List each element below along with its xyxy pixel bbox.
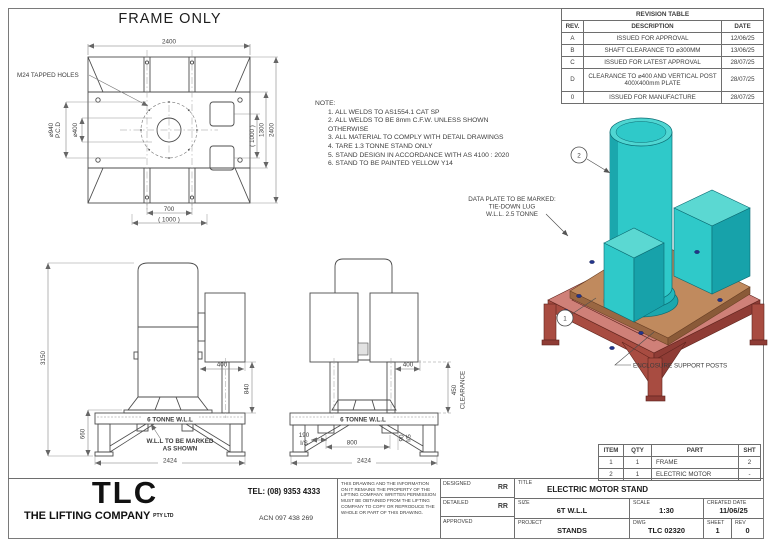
desc-cell: CLEARANCE TO ⌀400 AND VERTICAL POST 400X…	[584, 69, 722, 92]
top-view-drawing: 2400 M24 TAPPED HOLES ⌀940 P.C.D ⌀400 ( …	[8, 10, 308, 235]
side-elevation-objects	[95, 263, 245, 456]
designed-row: DESIGNED RR	[441, 479, 514, 498]
dim-bottom-700: 700	[164, 206, 175, 213]
balloon-2-label: 2	[577, 153, 581, 160]
approved-label: APPROVED	[443, 519, 472, 525]
revision-table: REVISION TABLE REV. DESCRIPTION DATE AIS…	[561, 8, 764, 104]
size-value: 6T W.L.L	[515, 506, 629, 515]
scale-value: 1:30	[630, 506, 703, 515]
dim-2424-side: 2424	[163, 458, 178, 465]
rev-cell: D	[562, 69, 584, 92]
company-name: THE LIFTING COMPANY PTY LTD	[24, 510, 174, 522]
dim-3150: 3150	[40, 351, 47, 366]
side-elevation-drawing: 6 TONNE W.L.L 3150 660 400 840 2424 W.L.…	[20, 232, 280, 475]
company-logo: TLC	[40, 475, 210, 511]
data-plate-note-1: DATA PLATE TO BE MARKED:	[468, 196, 556, 203]
data-plate-note-2: TIE-DOWN LUG	[489, 204, 536, 211]
dim-right-1000: ( 1000 )	[249, 125, 256, 147]
signature-column: DESIGNED RR DETAILED RR APPROVED	[440, 479, 514, 538]
scale-cell: SCALE 1:30	[629, 499, 703, 518]
qty-cell: 1	[624, 457, 652, 469]
dim-pcd: ⌀940	[48, 122, 55, 137]
size-scale-date-row: SIZE 6T W.L.L SCALE 1:30 CREATED DATE 11…	[515, 499, 763, 519]
phone-number: TEL: (08) 9353 4333	[230, 487, 338, 496]
dim-840: 840	[244, 383, 251, 394]
dim-2424-front: 2424	[357, 458, 372, 465]
designed-value: RR	[498, 484, 508, 491]
created-date-value: 11/06/25	[704, 506, 763, 515]
desc-cell: ISSUED FOR APPROVAL	[584, 33, 722, 45]
top-view-frame-outline	[88, 57, 250, 203]
part-col-header: PART	[652, 445, 739, 457]
wll-callout-line2: AS SHOWN	[163, 446, 198, 453]
desc-cell: SHAFT CLEARANCE TO ⌀300MM	[584, 45, 722, 57]
rev-cell: C	[562, 57, 584, 69]
clearance-label: CLEARANCE	[460, 371, 467, 410]
rev-number: 0	[732, 526, 763, 535]
is-label-left: I/S	[300, 440, 308, 447]
sheet-number: 1	[704, 526, 731, 535]
rev-cell: A	[562, 33, 584, 45]
date-cell: 12/06/25	[722, 33, 764, 45]
front-elevation-objects	[290, 259, 438, 456]
dim-bore: ⌀400	[72, 122, 79, 137]
item-table: ITEM QTY PART SHT 1 1 FRAME 2 2 1 ELECTR…	[598, 444, 761, 481]
balloon-1-label: 1	[563, 316, 567, 323]
dim-right-1300: 1300	[259, 123, 266, 138]
is-label-right: I/S	[406, 434, 413, 442]
detailed-label: DETAILED	[443, 500, 469, 506]
sheet-cell: SHEET 1	[703, 519, 731, 538]
side-elevation-text: 6 TONNE W.L.L 3150 660 400 840 2424 W.L.…	[40, 351, 251, 465]
qty-col-header: QTY	[624, 445, 652, 457]
project-cell: PROJECT STANDS	[515, 519, 629, 538]
title-block: TLC THE LIFTING COMPANY PTY LTD TEL: (08…	[8, 478, 763, 539]
dim-90: 90	[399, 434, 406, 442]
side-wll-label: 6 TONNE W.L.L	[147, 417, 193, 424]
front-wll-label: 6 TONNE W.L.L	[340, 417, 386, 424]
rev-col-header: REV.	[562, 21, 584, 33]
part-cell: FRAME	[652, 457, 739, 469]
drawing-info-section: TITLE ELECTRIC MOTOR STAND SIZE 6T W.L.L…	[514, 479, 763, 538]
acn-number: ACN 097 438 269	[236, 515, 336, 522]
date-cell: 28/07/25	[722, 69, 764, 92]
title-cell: TITLE ELECTRIC MOTOR STAND	[515, 479, 763, 498]
title-row: TITLE ELECTRIC MOTOR STAND	[515, 479, 763, 499]
desc-col-header: DESCRIPTION	[584, 21, 722, 33]
date-col-header: DATE	[722, 21, 764, 33]
table-row: 1 1 FRAME 2	[599, 457, 761, 469]
sht-cell: 2	[739, 457, 761, 469]
top-view-dimensions	[66, 44, 278, 225]
approved-row: APPROVED	[441, 517, 514, 537]
rev-cell: REV 0	[731, 519, 763, 538]
dwg-number: TLC 02320	[630, 526, 703, 535]
project-value: STANDS	[515, 526, 629, 535]
revision-table-title: REVISION TABLE	[562, 9, 764, 21]
dim-pcd-sub: P.C.D	[55, 122, 62, 138]
copyright-disclaimer: THIS DRAWING AND THE INFORMATION ON IT R…	[337, 479, 440, 538]
dim-660: 660	[80, 428, 87, 439]
title-label: TITLE	[518, 480, 532, 486]
top-view-centerlines	[120, 50, 218, 210]
size-cell: SIZE 6T W.L.L	[515, 499, 629, 518]
dim-bottom-1000: ( 1000 )	[158, 217, 180, 224]
created-date-cell: CREATED DATE 11/06/25	[703, 499, 763, 518]
dim-400-side: 400	[217, 362, 228, 369]
enclosure-posts-label: ENCLOSURE SUPPORT POSTS	[633, 363, 727, 370]
front-elevation-dimensions	[291, 360, 451, 465]
detailed-value: RR	[498, 503, 508, 510]
dim-400-front: 400	[403, 362, 414, 369]
desc-cell: ISSUED FOR LATEST APPROVAL	[584, 57, 722, 69]
dim-top-2400: 2400	[162, 39, 177, 46]
company-name-text: THE LIFTING COMPANY	[24, 510, 150, 522]
wll-callout-line1: W.L.L TO BE MARKED	[147, 438, 214, 445]
dim-800: 800	[347, 440, 358, 447]
rev-cell: B	[562, 45, 584, 57]
item-cell: 1	[599, 457, 624, 469]
company-cell: TLC THE LIFTING COMPANY PTY LTD TEL: (08…	[8, 479, 337, 538]
dwg-cell: DWG TLC 02320	[629, 519, 703, 538]
m24-label: M24 TAPPED HOLES	[17, 72, 79, 79]
item-col-header: ITEM	[599, 445, 624, 457]
date-cell: 13/06/25	[722, 45, 764, 57]
dim-450: 450	[451, 384, 458, 395]
project-dwg-row: PROJECT STANDS DWG TLC 02320 SHEET 1 REV…	[515, 519, 763, 538]
company-suffix: PTY LTD	[153, 513, 173, 519]
dim-right-2400: 2400	[269, 123, 276, 138]
drawing-sheet: FRAME ONLY	[0, 0, 771, 545]
front-elevation-drawing: 6 TONNE W.L.L 400 450 CLEARANCE 190 I/S …	[270, 250, 505, 475]
designed-label: DESIGNED	[443, 481, 471, 487]
drawing-title: ELECTRIC MOTOR STAND	[547, 485, 763, 494]
dim-190: 190	[299, 432, 310, 439]
detailed-row: DETAILED RR	[441, 498, 514, 517]
date-cell: 28/07/25	[722, 57, 764, 69]
data-plate-note-3: W.L.L. 2.5 TONNE	[486, 211, 538, 218]
sht-col-header: SHT	[739, 445, 761, 457]
